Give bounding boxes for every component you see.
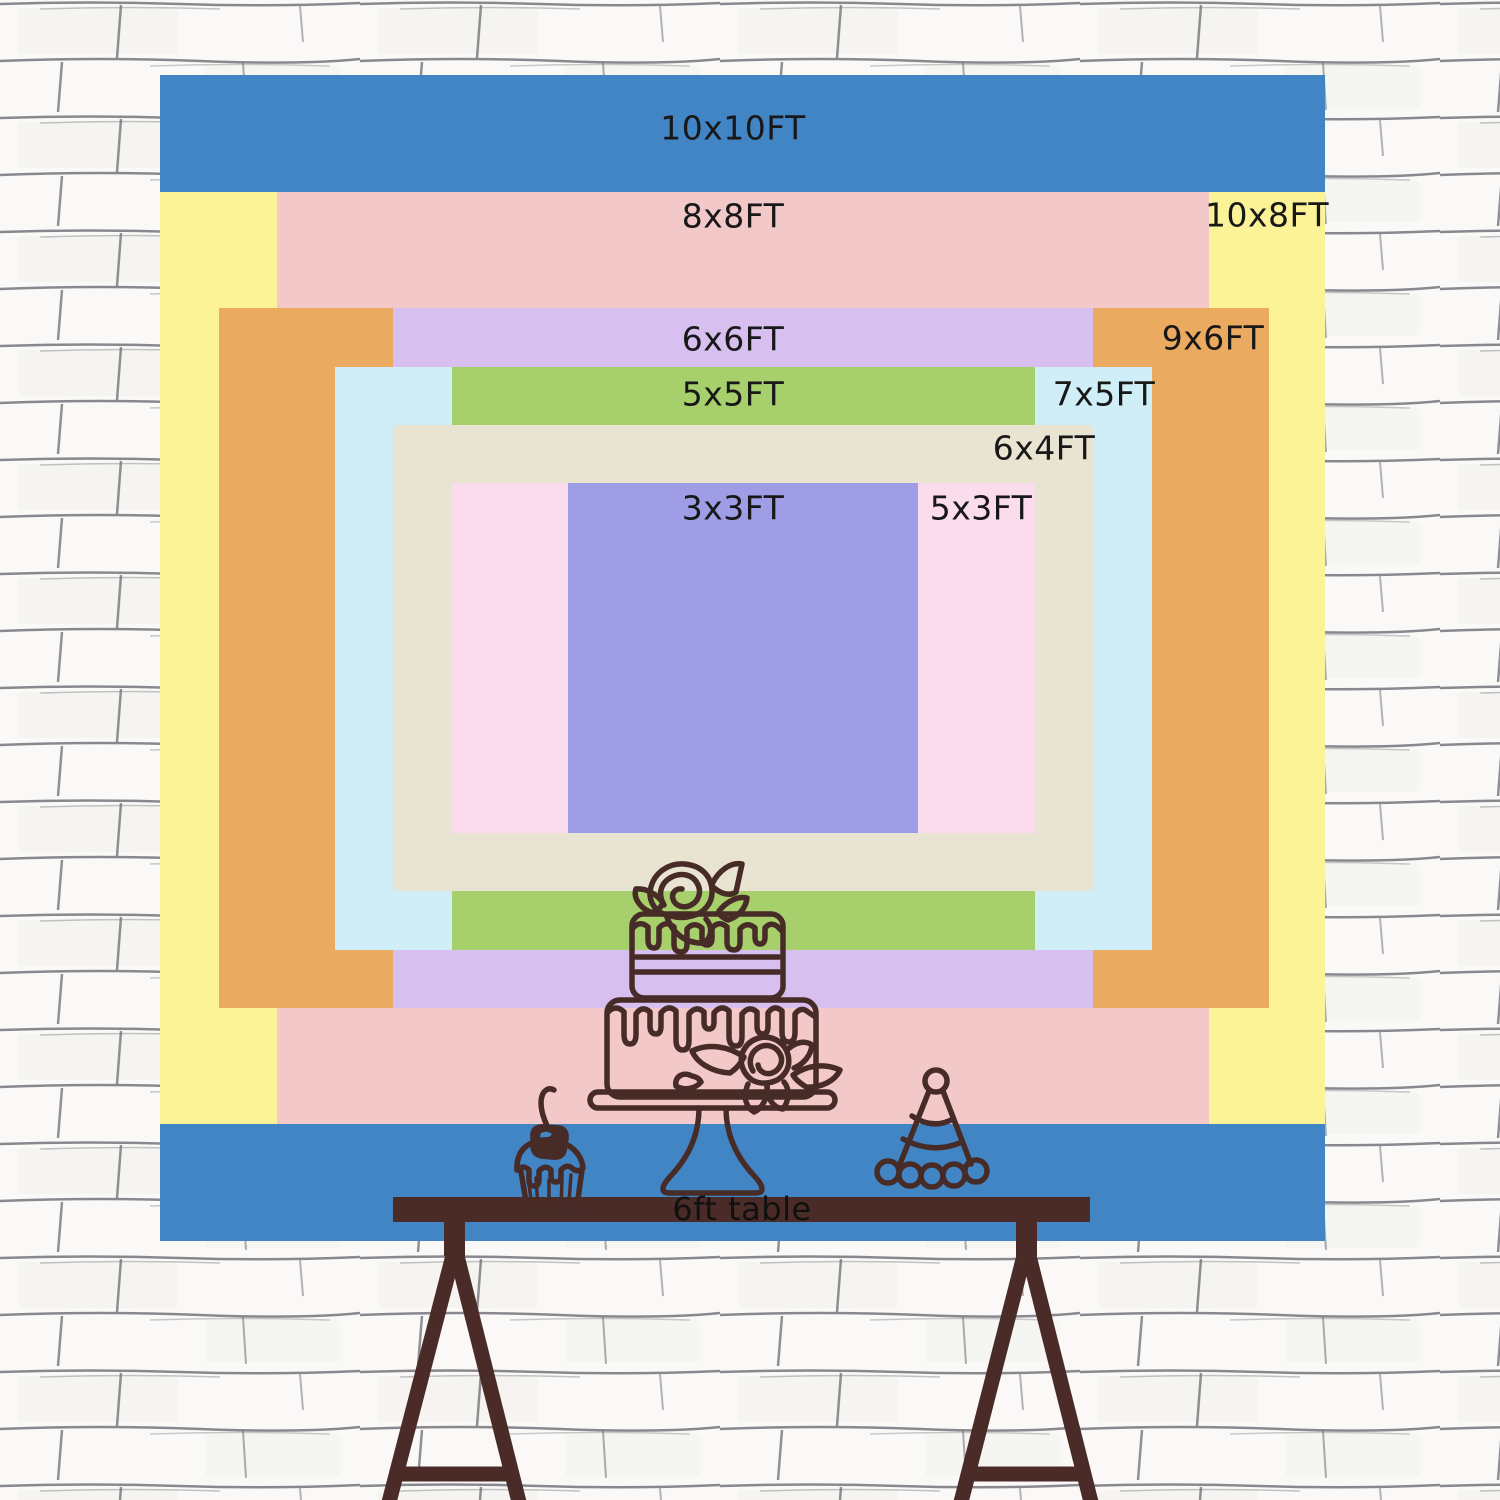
backdrop-rect-3x3ft (568, 483, 918, 833)
size-label-6x6ft: 6x6FT (682, 323, 785, 356)
size-label-6x4ft: 6x4FT (993, 432, 1096, 465)
size-label-8x8ft: 8x8FT (682, 200, 785, 233)
size-label-10x8ft: 10x8FT (1205, 199, 1329, 232)
table-size-label: 6ft table (672, 1193, 811, 1225)
size-label-5x5ft: 5x5FT (682, 378, 785, 411)
size-label-10x10ft: 10x10FT (660, 112, 806, 145)
size-label-5x3ft: 5x3FT (930, 492, 1033, 525)
size-label-9x6ft: 9x6FT (1162, 322, 1265, 355)
size-label-3x3ft: 3x3FT (682, 492, 785, 525)
size-label-7x5ft: 7x5FT (1053, 378, 1156, 411)
backdrop-size-chart: 10x10FT 8x8FT 10x8FT 6x6FT 9x6FT 5x5FT 7… (0, 0, 1500, 1500)
